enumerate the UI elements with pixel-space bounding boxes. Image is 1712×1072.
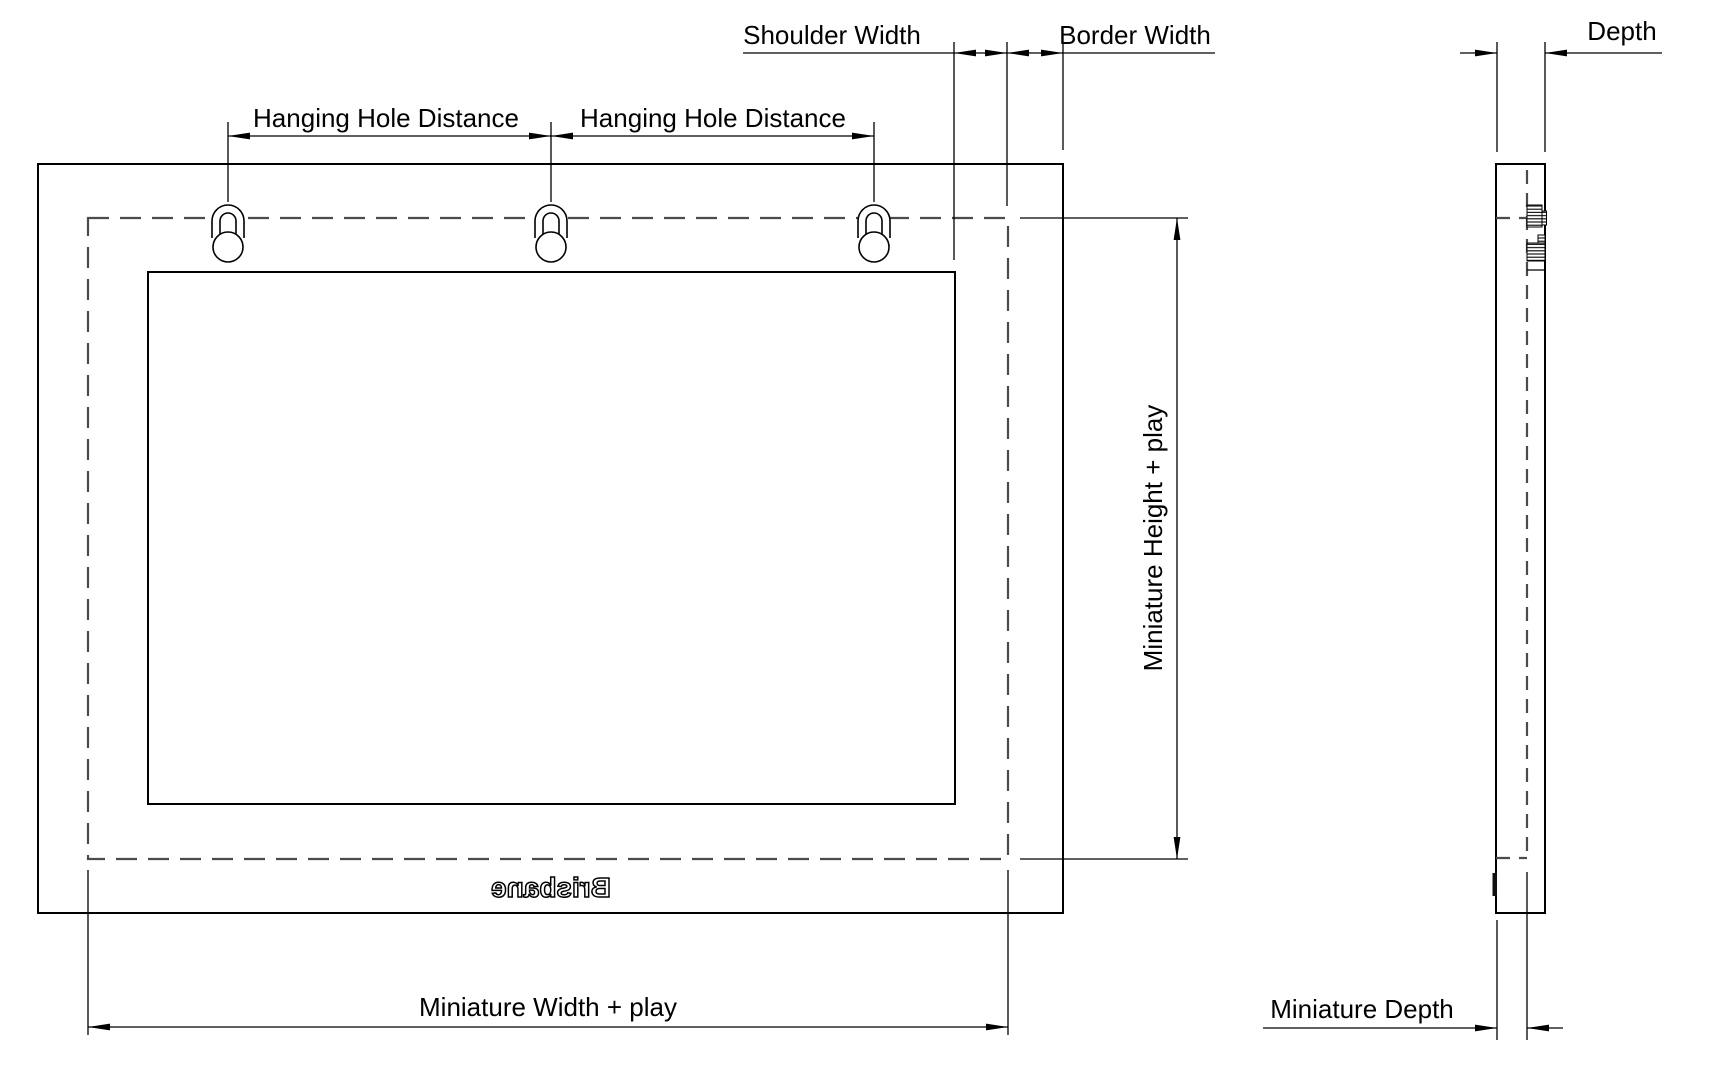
front-view: Brisbane <box>38 164 1063 913</box>
dim-miniature-height: Miniature Height + play <box>1020 218 1188 859</box>
logo-emboss-section <box>1493 873 1498 896</box>
keyhole-hanger-left <box>212 205 244 262</box>
label-hanging-hole-distance-right: Hanging Hole Distance <box>580 103 846 133</box>
label-depth: Depth <box>1587 16 1656 46</box>
label-shoulder-width: Shoulder Width <box>743 20 921 50</box>
side-view <box>1493 164 1547 1040</box>
dimensions: Hanging Hole Distance Hanging Hole Dista… <box>88 16 1662 1040</box>
label-miniature-height: Miniature Height + play <box>1138 405 1168 672</box>
label-miniature-width: Miniature Width + play <box>419 992 677 1022</box>
miniature-recess-dashed-outline <box>88 218 1008 859</box>
label-border-width: Border Width <box>1059 20 1211 50</box>
keyhole-hanger-center <box>535 205 567 262</box>
technical-drawing: Brisbane Hanging Hole Distance <box>0 0 1712 1072</box>
dim-shoulder-border-width: Shoulder Width Border Width <box>743 20 1215 260</box>
label-hanging-hole-distance-left: Hanging Hole Distance <box>253 103 519 133</box>
dim-depth: Depth <box>1460 16 1662 152</box>
miniature-opening <box>148 272 955 804</box>
brand-logo-mirrored: Brisbane <box>491 872 611 903</box>
dim-miniature-depth: Miniature Depth <box>1263 920 1563 1040</box>
dim-hanging-hole-distance: Hanging Hole Distance Hanging Hole Dista… <box>228 103 874 202</box>
hanger-hook-section <box>1527 205 1547 270</box>
side-profile-outline <box>1496 164 1545 913</box>
label-miniature-depth: Miniature Depth <box>1270 994 1454 1024</box>
keyhole-hanger-right <box>858 205 890 262</box>
outer-frame <box>38 164 1063 913</box>
